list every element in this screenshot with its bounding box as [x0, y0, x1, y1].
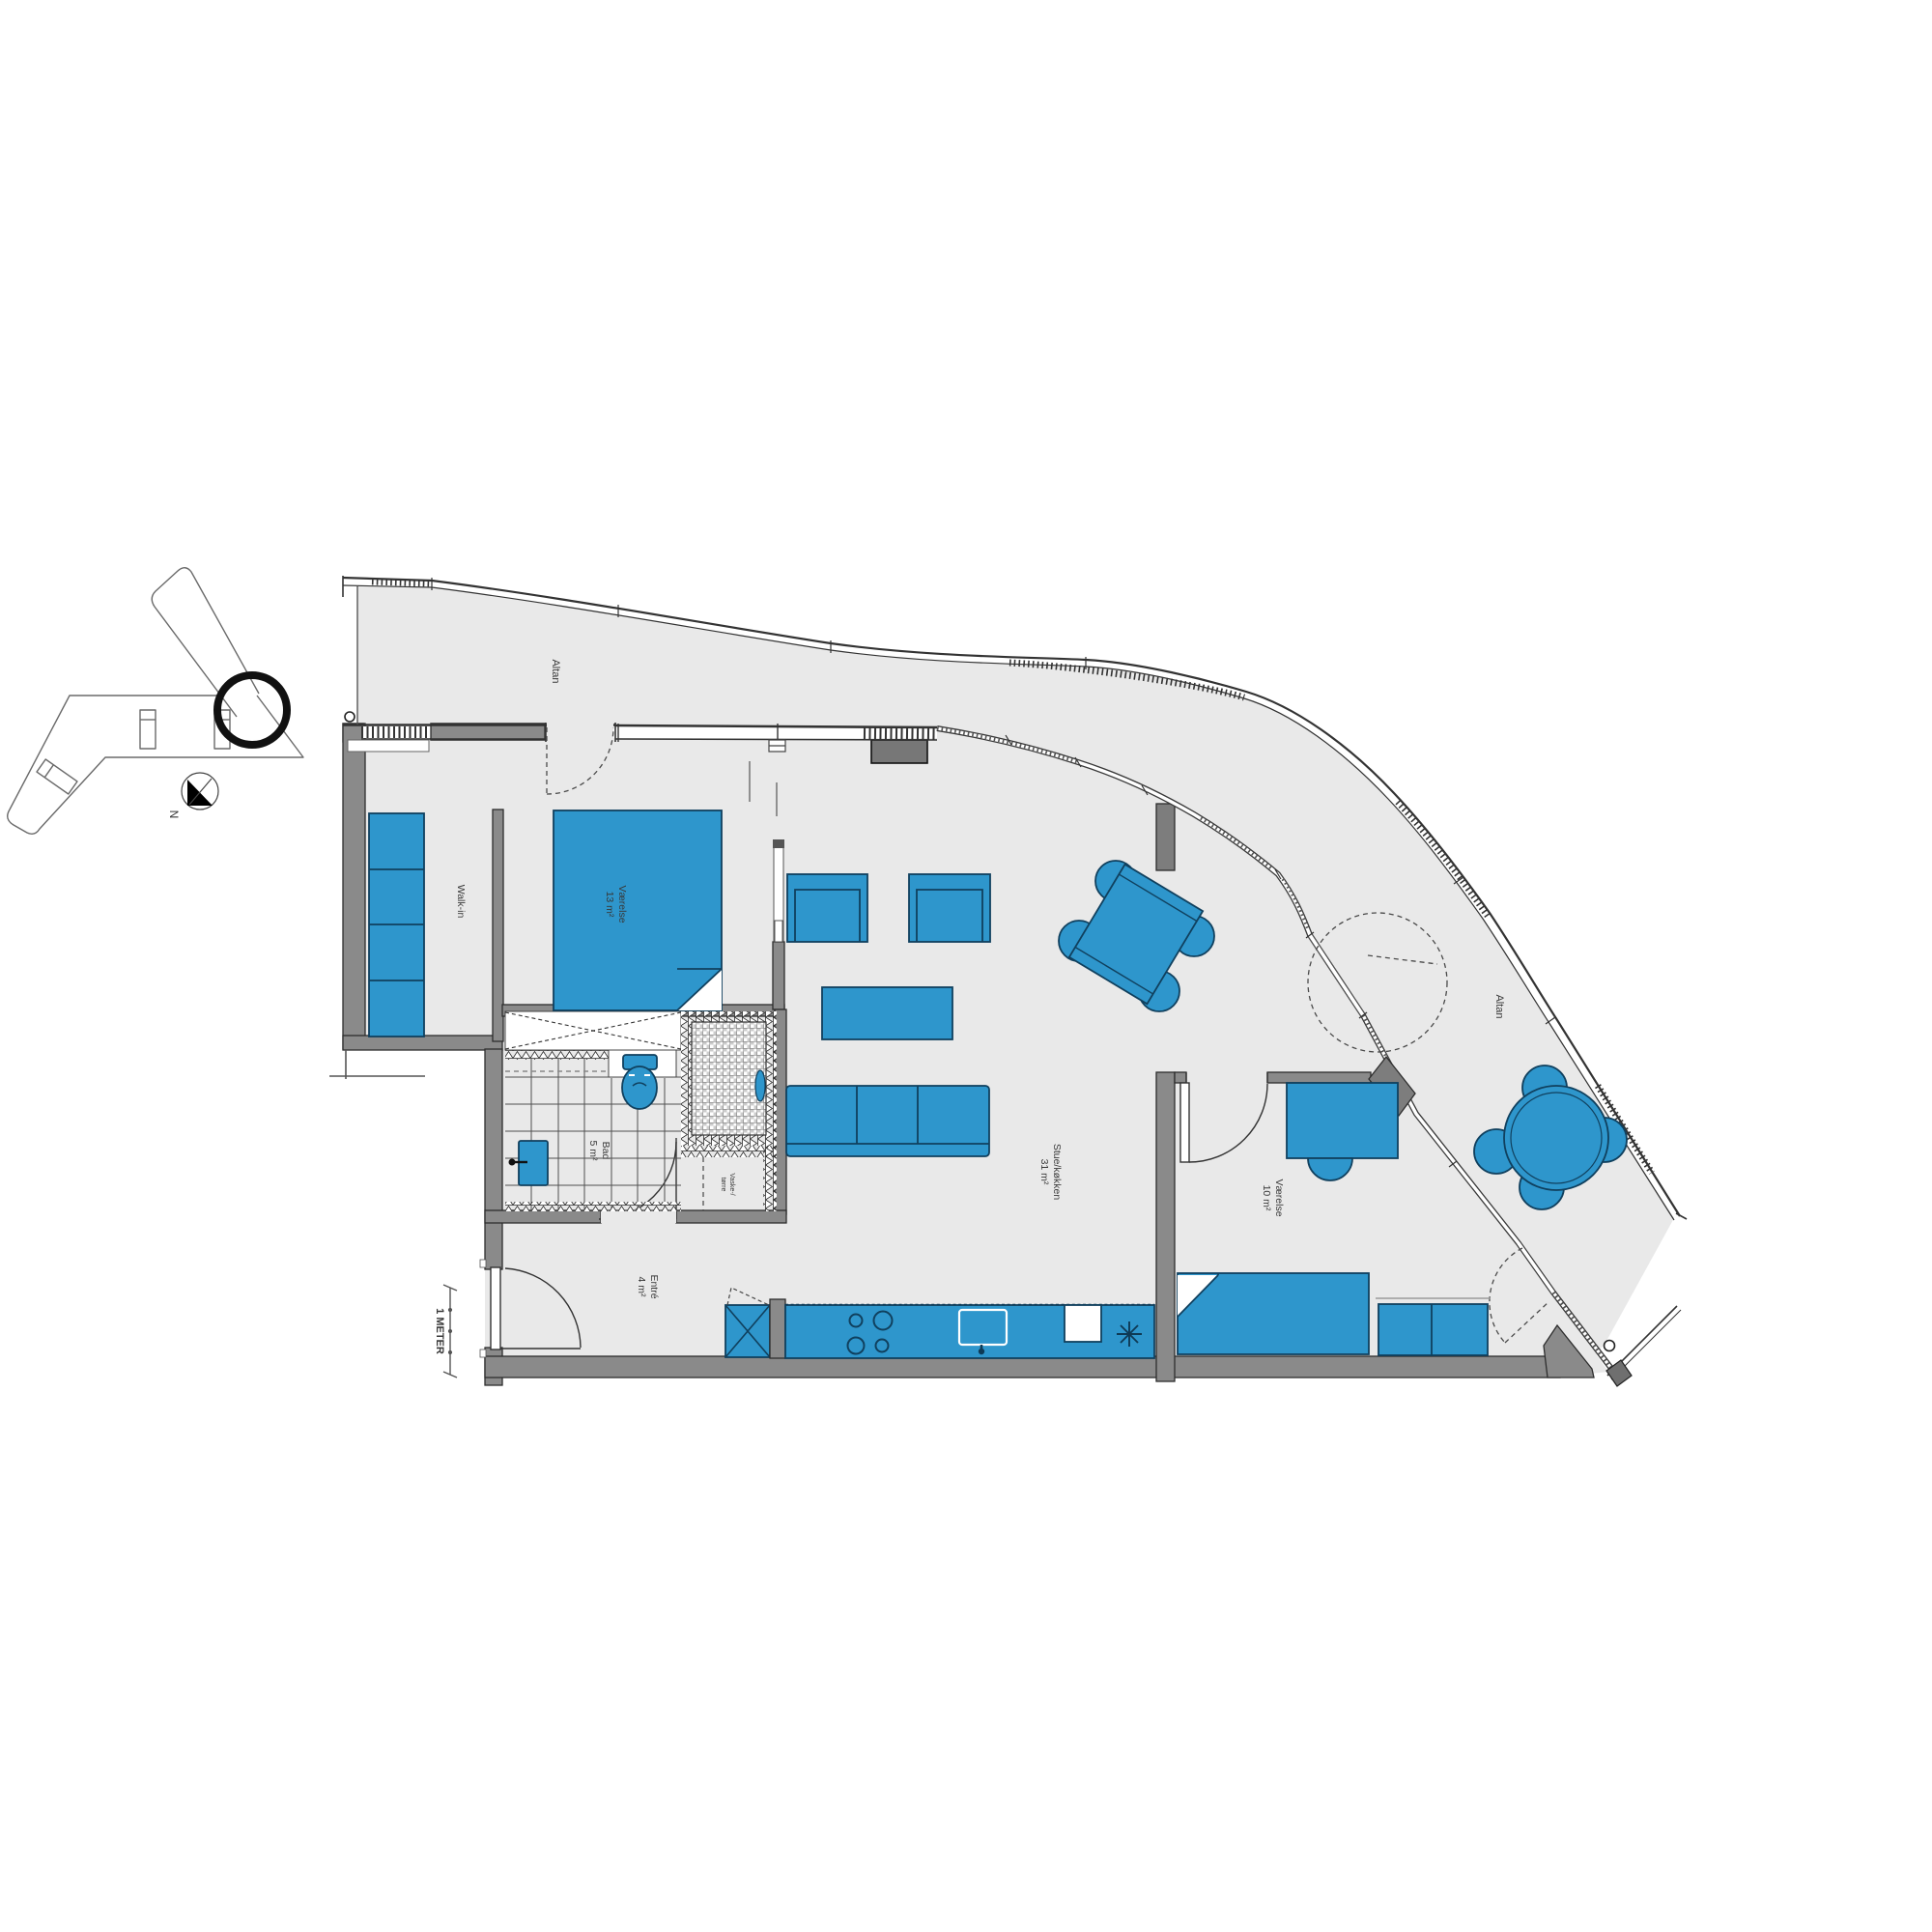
- svg-text:Stue/køkken: Stue/køkken: [1051, 1144, 1063, 1201]
- svg-text:Vaske-/: Vaske-/: [728, 1173, 735, 1195]
- svg-text:4 m²: 4 m²: [636, 1277, 647, 1298]
- svg-text:10 m²: 10 m²: [1261, 1185, 1272, 1211]
- svg-text:Altan: Altan: [1493, 994, 1505, 1018]
- svg-text:Altan: Altan: [550, 659, 561, 683]
- svg-text:Entré: Entré: [648, 1274, 660, 1298]
- svg-text:Værelse: Værelse: [1273, 1179, 1285, 1216]
- svg-text:13 m²: 13 m²: [604, 892, 615, 918]
- svg-text:tørre: tørre: [720, 1178, 726, 1192]
- svg-text:5 m²: 5 m²: [587, 1141, 599, 1162]
- svg-text:Bad: Bad: [600, 1142, 611, 1160]
- svg-text:N: N: [167, 810, 181, 819]
- svg-text:Walk-in: Walk-in: [455, 885, 467, 919]
- svg-text:1 METER: 1 METER: [434, 1308, 445, 1354]
- svg-text:31 m²: 31 m²: [1038, 1159, 1050, 1185]
- svg-text:Værelse: Værelse: [616, 885, 628, 923]
